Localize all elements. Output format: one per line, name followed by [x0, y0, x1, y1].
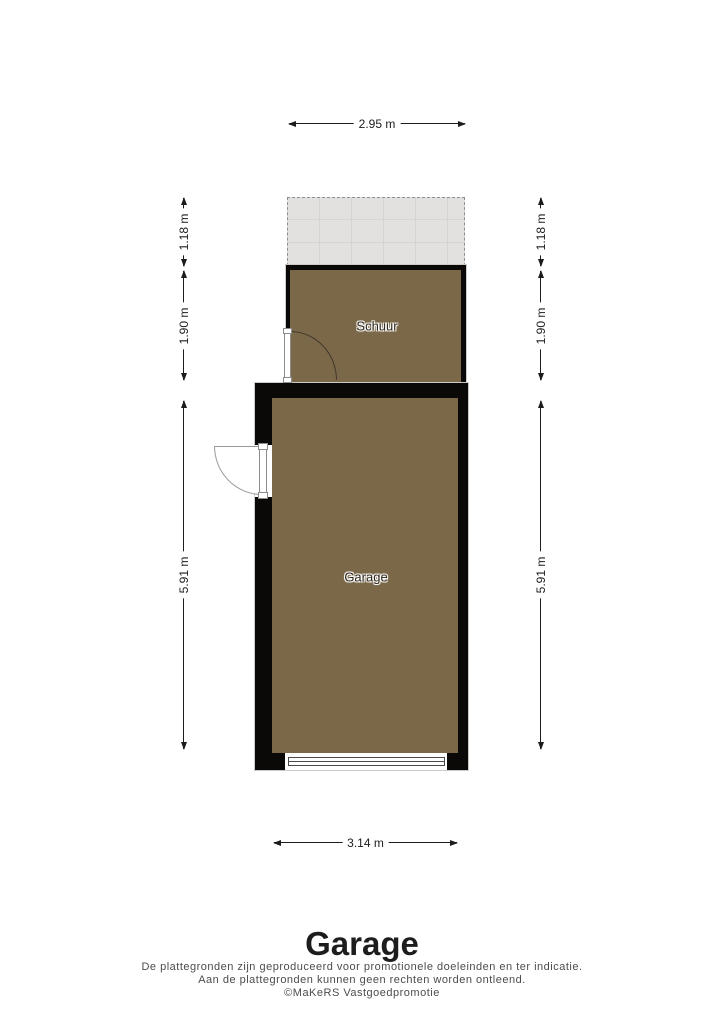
dimension-right-lower: 5.91 m: [534, 400, 547, 750]
arrow-left-icon: [288, 121, 296, 127]
dimension-label: 1.18 m: [177, 209, 191, 256]
dimension-left-mid: 1.90 m: [177, 270, 190, 381]
garage-side-door-frame: [259, 445, 267, 497]
dimension-left-upper: 1.18 m: [177, 197, 190, 267]
arrow-left-icon: [273, 840, 281, 846]
dimension-label: 3.14 m: [342, 836, 389, 850]
arrow-up-icon: [538, 197, 544, 205]
tiled-terrace-area: [287, 197, 465, 266]
dimension-label: 5.91 m: [534, 552, 548, 599]
disclaimer-line-1: De plattegronden zijn geproduceerd voor …: [0, 961, 724, 974]
arrow-down-icon: [538, 259, 544, 267]
arrow-right-icon: [450, 840, 458, 846]
arrow-up-icon: [538, 400, 544, 408]
dimension-right-upper: 1.18 m: [534, 197, 547, 267]
dimension-label: 5.91 m: [177, 552, 191, 599]
arrow-up-icon: [538, 270, 544, 278]
schuur-door-frame: [284, 330, 291, 381]
dimension-label: 1.90 m: [177, 302, 191, 349]
dimension-top: 2.95 m: [288, 117, 466, 130]
dimension-right-mid: 1.90 m: [534, 270, 547, 381]
dimension-bottom: 3.14 m: [273, 836, 458, 849]
room-label-garage: Garage: [344, 570, 387, 585]
arrow-up-icon: [181, 197, 187, 205]
arrow-up-icon: [181, 270, 187, 278]
arrow-down-icon: [181, 373, 187, 381]
dimension-label: 2.95 m: [354, 117, 401, 131]
disclaimer-text: De plattegronden zijn geproduceerd voor …: [0, 961, 724, 1000]
arrow-down-icon: [538, 373, 544, 381]
garage-side-door-jamb-top: [258, 443, 268, 450]
dimension-left-lower: 5.91 m: [177, 400, 190, 750]
disclaimer-line-3: ©MaKeRS Vastgoedpromotie: [0, 987, 724, 1000]
schuur-door-jamb-top: [283, 328, 292, 334]
garage-door-panel-line: [289, 761, 444, 762]
schuur-door-jamb-bottom: [283, 377, 292, 383]
arrow-up-icon: [181, 400, 187, 408]
floorplan-page: Schuur Garage 2.95 m 3.14 m 1.18 m 1.90 …: [0, 0, 724, 1024]
arrow-down-icon: [538, 742, 544, 750]
page-title: Garage: [0, 925, 724, 963]
garage-door-panel: [288, 757, 445, 766]
arrow-down-icon: [181, 742, 187, 750]
arrow-down-icon: [181, 259, 187, 267]
arrow-right-icon: [458, 121, 466, 127]
garage-side-door-swing: [214, 446, 262, 495]
dimension-label: 1.90 m: [534, 302, 548, 349]
garage-side-door-jamb-bottom: [258, 492, 268, 499]
room-label-schuur: Schuur: [356, 319, 397, 334]
dimension-label: 1.18 m: [534, 209, 548, 256]
disclaimer-line-2: Aan de plattegronden kunnen geen rechten…: [0, 974, 724, 987]
